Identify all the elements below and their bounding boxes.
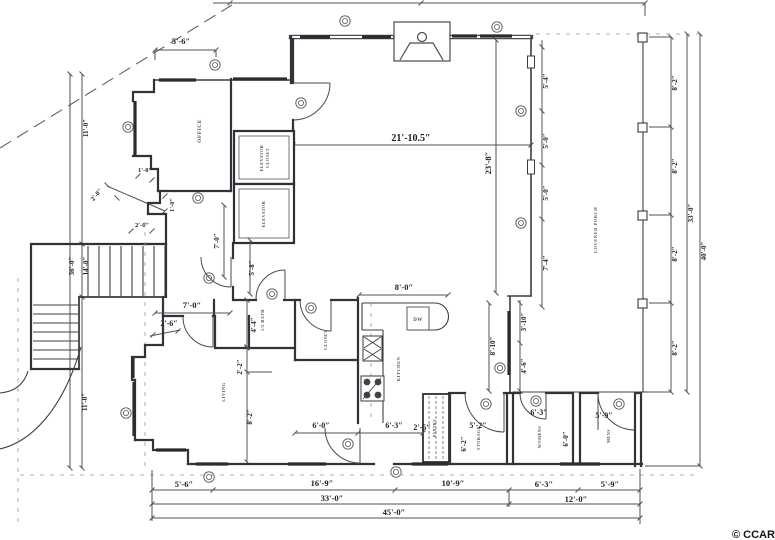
svg-text:5'-6″: 5'-6″ — [175, 479, 193, 489]
svg-text:5'-9″: 5'-9″ — [595, 411, 612, 420]
svg-text:5'-8″: 5'-8″ — [248, 260, 256, 275]
svg-text:6'-2″: 6'-2″ — [460, 436, 468, 451]
svg-text:21'-10.5″: 21'-10.5″ — [391, 133, 430, 144]
svg-text:45'-0″: 45'-0″ — [383, 507, 406, 517]
svg-text:6'-3″: 6'-3″ — [535, 479, 553, 489]
svg-text:10'-9″: 10'-9″ — [442, 478, 465, 488]
svg-text:© CCAR: © CCAR — [732, 529, 775, 540]
svg-text:8'-2″: 8'-2″ — [671, 75, 679, 90]
svg-text:4'-4″: 4'-4″ — [250, 317, 258, 332]
svg-text:8'-2″: 8'-2″ — [246, 409, 254, 424]
svg-text:5'-9″: 5'-9″ — [601, 479, 619, 489]
svg-text:33'-0″: 33'-0″ — [321, 493, 344, 503]
svg-text:8'-2″: 8'-2″ — [671, 246, 679, 261]
svg-text:CLOSET: CLOSET — [323, 330, 328, 350]
svg-text:6'-0″: 6'-0″ — [312, 421, 329, 430]
svg-text:ELEVATOR: ELEVATOR — [261, 200, 266, 227]
svg-text:DW: DW — [413, 318, 423, 323]
svg-text:1/2 BATH: 1/2 BATH — [260, 309, 265, 331]
svg-text:5'-4″: 5'-4″ — [542, 73, 550, 88]
svg-text:COVERED PORCH: COVERED PORCH — [593, 207, 598, 253]
svg-text:1'-0″: 1'-0″ — [138, 167, 152, 174]
svg-text:6'-3″: 6'-3″ — [530, 408, 547, 417]
svg-text:5'-0″: 5'-0″ — [542, 133, 550, 148]
svg-text:11'-0″: 11'-0″ — [81, 393, 89, 411]
svg-text:36'-0″: 36'-0″ — [68, 257, 76, 276]
svg-text:11'-0″: 11'-0″ — [82, 119, 90, 137]
svg-text:8'-2″: 8'-2″ — [671, 158, 679, 173]
svg-text:OFFICE: OFFICE — [197, 119, 203, 143]
svg-text:8'-0″: 8'-0″ — [395, 282, 413, 292]
svg-text:MENS: MENS — [606, 429, 611, 443]
svg-text:2'-0″: 2'-0″ — [135, 222, 149, 229]
svg-text:5'-2″: 5'-2″ — [469, 421, 486, 430]
svg-text:7'-4″: 7'-4″ — [542, 255, 550, 270]
svg-text:WOMENS: WOMENS — [537, 426, 542, 449]
svg-text:33'-0″: 33'-0″ — [687, 204, 695, 223]
svg-text:8'-2″: 8'-2″ — [671, 340, 679, 355]
svg-text:KITCHEN: KITCHEN — [396, 356, 401, 381]
svg-text:2'-5″: 2'-5″ — [413, 423, 430, 432]
svg-text:PANTRY: PANTRY — [433, 419, 437, 437]
svg-text:8'-10″: 8'-10″ — [489, 337, 497, 356]
svg-text:5'-0″: 5'-0″ — [542, 185, 550, 200]
svg-text:7'-0″: 7'-0″ — [183, 300, 201, 310]
svg-text:3'-10″: 3'-10″ — [520, 313, 528, 332]
svg-text:23'-8″: 23'-8″ — [483, 152, 493, 175]
svg-text:6'-3″: 6'-3″ — [385, 421, 402, 430]
svg-text:5'-6″: 5'-6″ — [172, 36, 190, 46]
svg-text:1'-0″: 1'-0″ — [169, 198, 176, 212]
svg-text:12'-0″: 12'-0″ — [565, 494, 588, 504]
svg-text:4'-6″: 4'-6″ — [520, 358, 528, 373]
svg-text:CLOSET: CLOSET — [265, 148, 270, 168]
svg-text:7'-0″: 7'-0″ — [213, 233, 221, 248]
svg-text:16'-9″: 16'-9″ — [311, 478, 334, 488]
svg-text:2'-2″: 2'-2″ — [236, 359, 244, 374]
svg-text:6'-0″: 6'-0″ — [562, 431, 570, 446]
svg-text:40'-0″: 40'-0″ — [700, 242, 708, 261]
svg-text:ELEVATOR: ELEVATOR — [259, 144, 264, 171]
svg-text:LIVING: LIVING — [221, 382, 226, 402]
svg-text:14'-0″: 14'-0″ — [82, 257, 90, 276]
